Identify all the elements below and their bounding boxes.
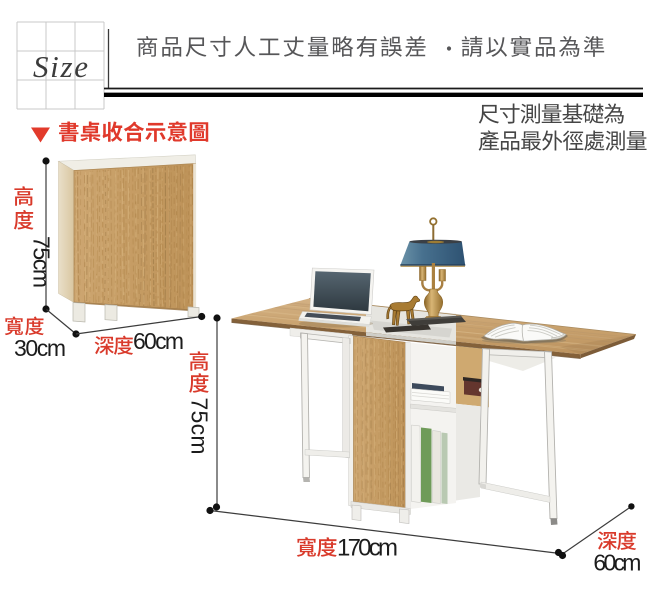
svg-text:30cm: 30cm — [14, 335, 66, 361]
svg-text:Size: Size — [33, 49, 88, 84]
svg-text:60cm: 60cm — [593, 550, 641, 576]
svg-text:170cm: 170cm — [337, 535, 398, 562]
svg-text:60cm: 60cm — [133, 328, 184, 354]
svg-text:75cm: 75cm — [187, 398, 213, 455]
svg-text:75cm: 75cm — [29, 236, 55, 288]
